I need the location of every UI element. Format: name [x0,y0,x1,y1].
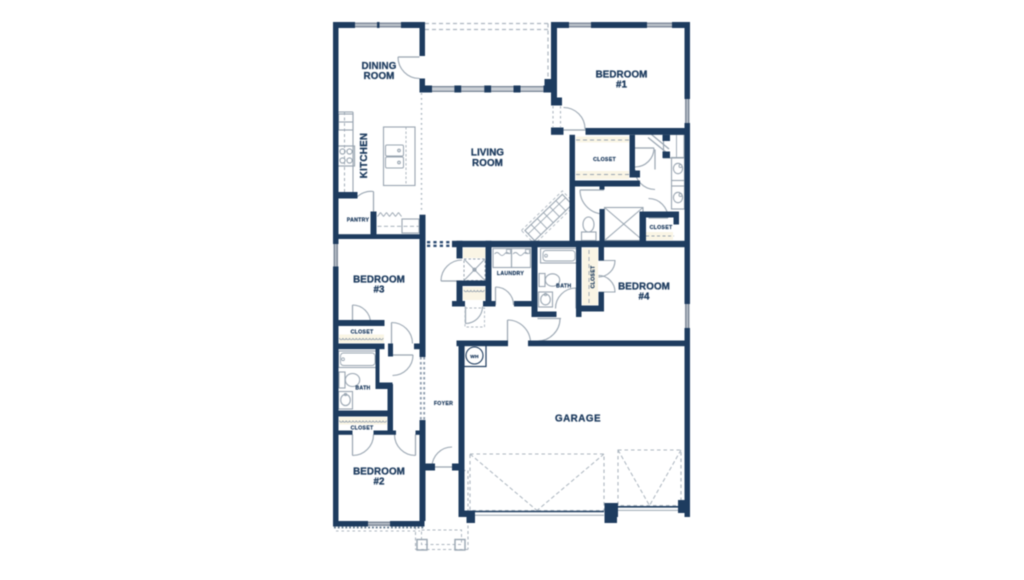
svg-text:#1: #1 [616,80,628,91]
svg-text:CLOSET: CLOSET [351,330,374,336]
svg-text:#3: #3 [373,285,385,296]
svg-text:LIVING: LIVING [471,148,505,159]
svg-text:ROOM: ROOM [472,158,503,169]
svg-text:BATH: BATH [556,284,571,290]
svg-text:BATH: BATH [355,386,370,392]
svg-text:GARAGE: GARAGE [555,414,601,425]
svg-text:CLOSET: CLOSET [650,225,673,231]
svg-text:PANTRY: PANTRY [347,218,370,224]
svg-text:ROOM: ROOM [364,71,395,82]
svg-text:FOYER: FOYER [434,401,453,407]
svg-text:WH: WH [470,354,479,360]
svg-text:CLOSET: CLOSET [593,157,616,163]
svg-text:CLOSET: CLOSET [351,426,374,432]
svg-text:KITCHEN: KITCHEN [359,133,370,179]
svg-text:#4: #4 [638,292,650,303]
svg-text:#2: #2 [373,477,385,488]
svg-text:CLOSET: CLOSET [591,265,597,288]
svg-text:LAUNDRY: LAUNDRY [497,271,525,277]
